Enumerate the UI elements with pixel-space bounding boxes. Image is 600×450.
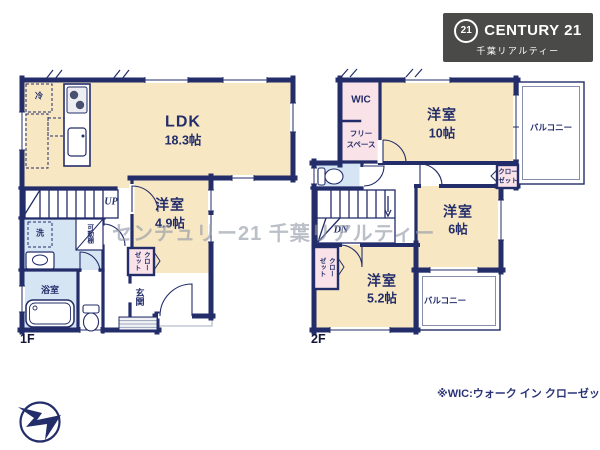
entrance-label: 玄関	[132, 285, 145, 309]
fridge-label: 冷	[35, 93, 43, 102]
floor-plan-page: LDK 18.3帖 洋室 4.9帖 冷 洗 可動棚 クローゼット 玄関 浴室 U…	[0, 0, 600, 450]
bedroom6-size: 6帖	[448, 223, 467, 237]
balcony-right	[518, 82, 584, 184]
watermark: センチュリー21 千葉リアルティー	[112, 217, 435, 246]
ldk-label: LDK	[165, 113, 201, 130]
ldk-size: 18.3帖	[165, 134, 202, 148]
closet-2f-left-label: クローゼット	[317, 257, 336, 278]
balcony-bottom-label: バルコニー	[424, 296, 466, 305]
free-space-line1: フリー	[350, 130, 373, 138]
closet-1f-label: クローゼット	[132, 251, 151, 272]
movable-shelf-label: 可動棚	[84, 221, 93, 247]
century21-logo: 21 CENTURY 21 千葉リアルティー	[443, 13, 593, 62]
stove	[67, 87, 87, 113]
bedroom10-label: 洋室	[427, 107, 457, 122]
bedroom52-label: 洋室	[367, 273, 397, 288]
balcony-right-label: バルコニー	[530, 123, 572, 132]
bedroom52-size: 5.2帖	[367, 292, 397, 306]
wic-label: WIC	[351, 96, 370, 107]
bath-label: 浴室	[41, 286, 59, 296]
free-space-line2: スペース	[346, 141, 375, 149]
floor1-label: 1F	[20, 332, 35, 346]
washbasin	[26, 252, 54, 269]
door-entrance	[160, 284, 192, 316]
entrance-step	[119, 317, 157, 330]
bedroom49-label: 洋室	[155, 197, 185, 212]
bedroom6-label: 洋室	[443, 204, 473, 219]
door-toilet-2f	[364, 166, 384, 186]
compass-icon	[18, 403, 61, 442]
sink	[68, 128, 86, 156]
floor2-label: 2F	[311, 332, 326, 346]
closet-2f-right-line2: ゼット	[498, 177, 518, 184]
door-bedroom6	[420, 164, 442, 186]
logo-subtitle: 千葉リアルティー	[476, 44, 559, 57]
toilet-2f	[318, 168, 343, 185]
washer-label: 洗	[36, 230, 44, 239]
logo-brand-text: CENTURY 21	[484, 22, 582, 39]
century21-seal-icon: 21	[454, 19, 478, 43]
wic-note: ※WIC:ウォーク イン クローゼット	[437, 385, 600, 401]
bedroom10-size: 10帖	[429, 127, 455, 141]
closet-2f-right-line1: クロー	[498, 168, 518, 175]
toilet-1f	[83, 305, 99, 331]
bathtub	[26, 300, 74, 327]
stairs-up-label: UP	[104, 198, 117, 209]
